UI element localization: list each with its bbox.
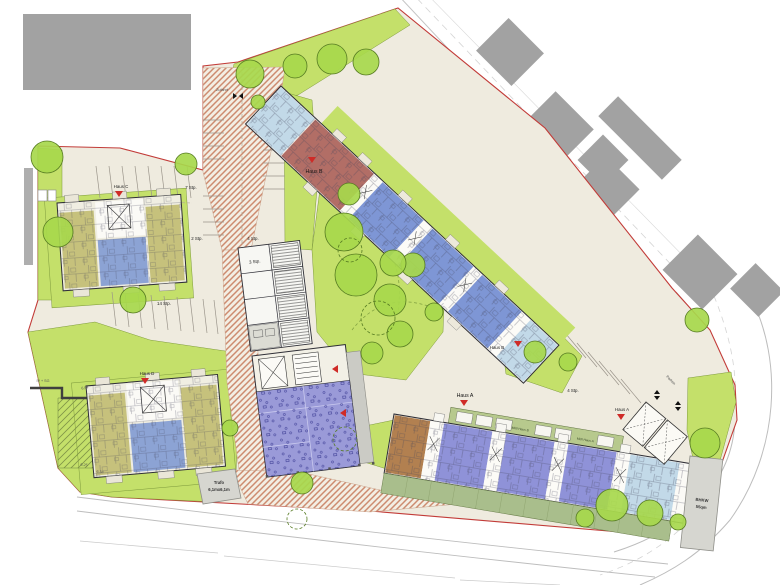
balcony (156, 188, 170, 196)
label-4-stp-court: 4 Stp. (247, 236, 258, 241)
tree (380, 250, 406, 276)
tree-proposed (287, 509, 307, 529)
label-haus-d: Haus D (140, 371, 155, 376)
porch (433, 413, 444, 423)
tree (425, 303, 443, 321)
post (358, 464, 361, 467)
label-haus-b-south: Haus B (490, 345, 504, 350)
label-zufahrt: Zufahrt (216, 88, 228, 92)
neighbour-building (476, 18, 544, 86)
tree (685, 308, 709, 332)
site-plan-svg: 3 Stp. Müll Haus B Müll H (0, 0, 780, 585)
room-texture (57, 194, 187, 290)
tree (43, 217, 73, 247)
tree (524, 341, 546, 363)
tree (222, 420, 238, 436)
label-dim-c: 6,34 (96, 470, 104, 475)
community-building (251, 343, 375, 478)
balcony (64, 194, 78, 202)
label-trafo: Trafo (214, 480, 225, 485)
building-haus-c (57, 187, 188, 297)
furniture-texture (256, 380, 360, 477)
bike-storage-cell (274, 268, 303, 293)
tree (596, 489, 628, 521)
shed-cell (249, 323, 281, 350)
bike-storage-cell (277, 294, 306, 319)
tree (291, 472, 313, 494)
tree (361, 342, 383, 364)
balcony (95, 377, 110, 385)
label-4-stp-east: 4 Stp. (567, 388, 578, 393)
label-dim-b: 6,25 (80, 463, 88, 468)
balcony (106, 475, 123, 483)
label-haus-b: Haus B (305, 169, 323, 175)
balcony (73, 289, 89, 297)
tree (31, 141, 63, 173)
tree (637, 500, 663, 526)
neighbour-building (23, 14, 191, 90)
tree (175, 153, 197, 175)
room-texture (86, 374, 226, 477)
tree (338, 183, 360, 205)
balcony (191, 369, 206, 377)
stair-core (292, 352, 321, 385)
post (328, 467, 331, 470)
tree (317, 44, 347, 74)
label-7-stp: 7 Stp. (185, 185, 196, 190)
tree (353, 49, 379, 75)
carport-block: 3 Stp. (238, 240, 312, 351)
tree (670, 514, 686, 530)
storage-box (48, 190, 56, 201)
building-haus-d (85, 368, 226, 485)
balcony (158, 471, 175, 479)
porch (496, 423, 507, 433)
label-floors: IV + SG (36, 379, 49, 383)
label-haus-a-west: Haus A (457, 393, 474, 399)
post (372, 462, 375, 465)
porch (620, 444, 631, 454)
balcony (159, 283, 175, 291)
tree (283, 54, 307, 78)
porch (558, 434, 569, 444)
neighbour-building (730, 263, 780, 317)
tree (387, 321, 413, 347)
label-14-stp: 14 Stp. (157, 301, 171, 306)
post (266, 475, 269, 478)
neighbour-building (24, 168, 33, 265)
tree (120, 287, 146, 313)
tree (236, 60, 264, 88)
tree (559, 353, 577, 371)
tree (690, 428, 720, 458)
storage-box (38, 190, 47, 201)
label-haus-a-east: Haus A (615, 407, 629, 412)
tree (251, 95, 265, 109)
site-plan-canvas: 3 Stp. Müll Haus B Müll H (0, 0, 780, 585)
tree (576, 509, 594, 527)
tree (374, 284, 406, 316)
road-bottom-detail (80, 541, 560, 585)
bike-storage-cell (271, 243, 300, 268)
label-haus-c: Haus C (114, 184, 129, 189)
bike-storage-cell (281, 320, 310, 345)
trafo-station: Trafo 6,1mx6,1m (197, 469, 241, 504)
tree (325, 213, 363, 251)
label-trafo-size: 6,1mx6,1m (208, 487, 230, 492)
label-2-stp: 2 Stp. (191, 236, 202, 241)
